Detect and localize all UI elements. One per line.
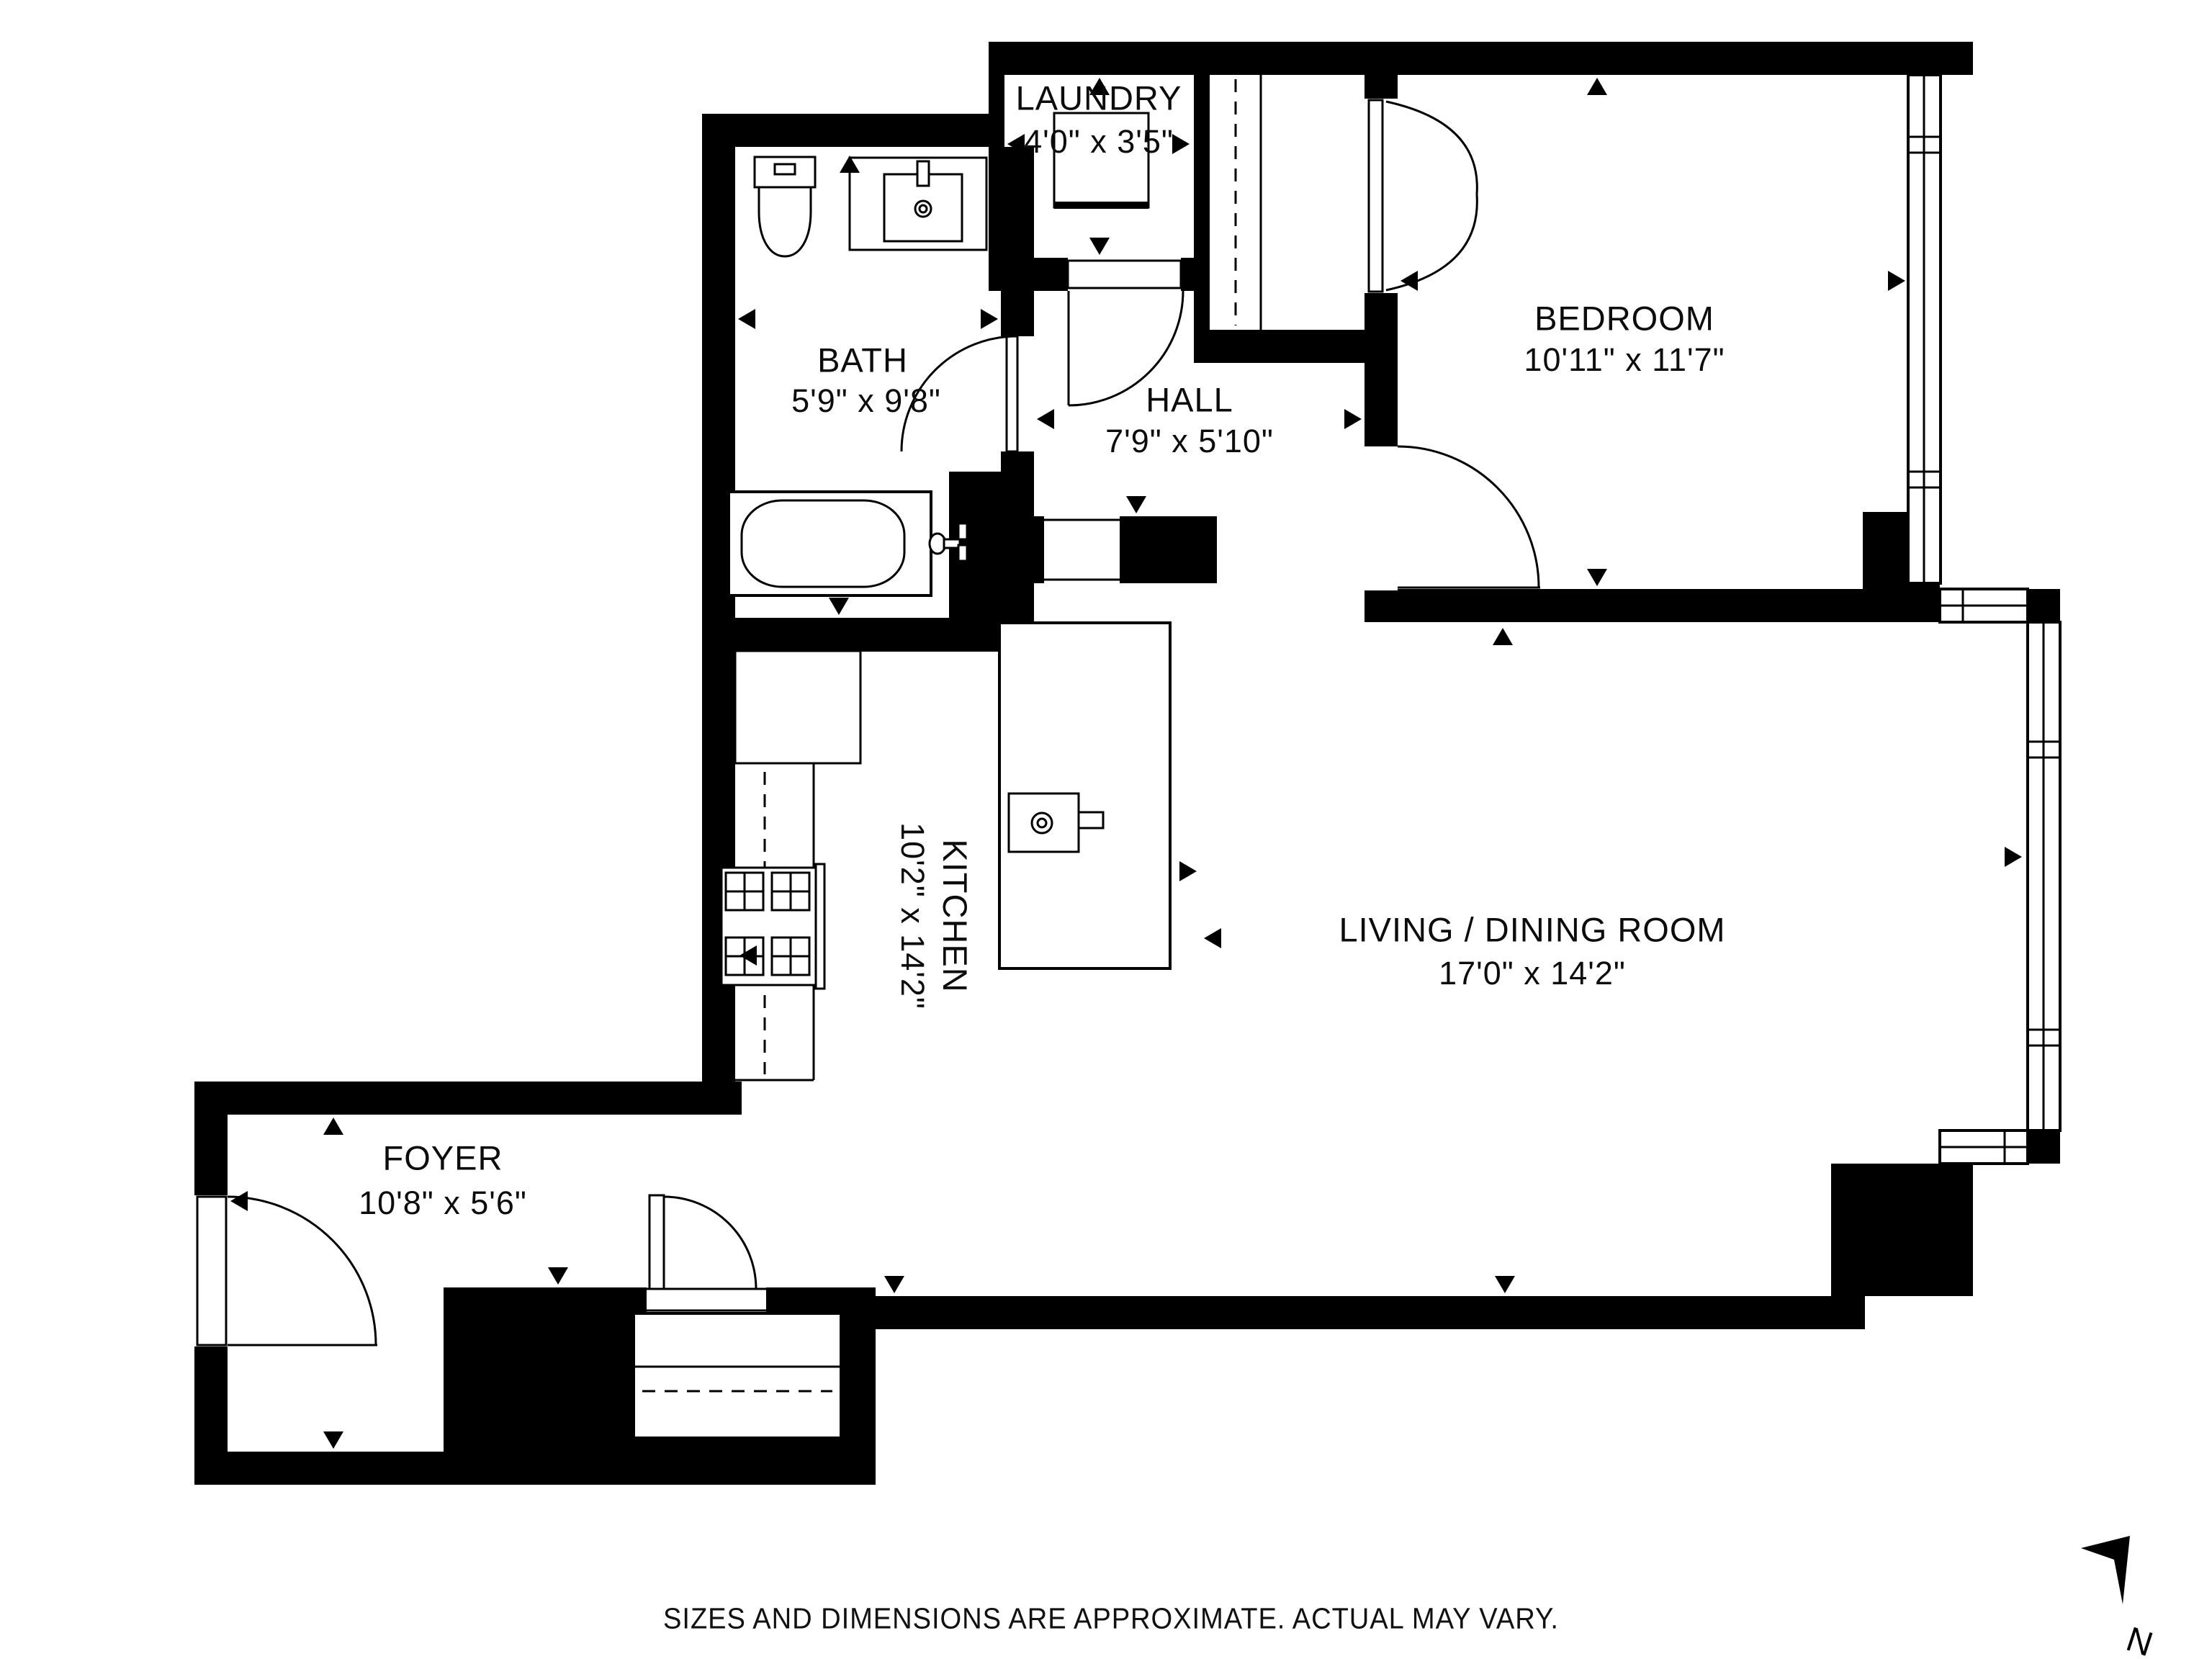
toilet-icon <box>755 157 815 256</box>
room-label-laundry: LAUNDRY <box>1016 78 1182 118</box>
bathtub-icon <box>729 492 967 595</box>
floorplan-drawing: N <box>0 0 2212 1659</box>
room-label-bedroom: BEDROOM <box>1534 299 1714 338</box>
room-label-hall: HALL <box>1146 380 1233 420</box>
room-dims-laundry: 4'0" x 3'5" <box>1024 123 1174 161</box>
bedroom-entry-door <box>1364 446 1540 590</box>
room-dims-bedroom: 10'11" x 11'7" <box>1524 341 1725 379</box>
foyer-entry-door <box>194 1195 377 1346</box>
hall-kitchen-opening <box>1044 516 1120 583</box>
north-label: N <box>2122 1620 2157 1659</box>
bathroom-sink-icon <box>850 158 986 250</box>
north-arrow-icon: N <box>2081 1536 2157 1659</box>
room-label-bath: BATH <box>817 341 908 380</box>
kitchen-island <box>999 623 1170 968</box>
foyer-closet <box>634 1313 841 1438</box>
living-corner-window-bottom <box>1940 1130 2028 1164</box>
room-label-foyer: FOYER <box>383 1138 503 1178</box>
room-dims-foyer: 10'8" x 5'6" <box>359 1184 527 1222</box>
disclaimer-text: SIZES AND DIMENSIONS ARE APPROXIMATE. AC… <box>663 1602 1559 1636</box>
room-label-living: LIVING / DINING ROOM <box>1339 910 1725 950</box>
room-label-kitchen-block: KITCHEN 10'2" x 14'2" <box>891 822 976 1010</box>
hall-closet <box>1236 75 1261 330</box>
room-dims-bath: 5'9" x 9'8" <box>791 382 941 420</box>
room-label-kitchen: KITCHEN <box>933 822 976 1010</box>
room-dims-kitchen: 10'2" x 14'2" <box>891 822 933 1010</box>
living-corner-window-top <box>1940 589 2028 622</box>
bedroom-closet-doors <box>1364 99 1477 293</box>
floorplan-page: N LAUNDRY 4'0" x 3'5" BATH 5'9" x 9'8" H… <box>0 0 2212 1659</box>
bedroom-window-band <box>1908 75 1941 583</box>
room-dims-living: 17'0" x 14'2" <box>1439 955 1626 992</box>
kitchen-counter <box>735 651 860 1080</box>
foyer-closet-door <box>647 1195 766 1313</box>
stove-icon <box>721 864 824 989</box>
room-dims-hall: 7'9" x 5'10" <box>1105 423 1274 460</box>
living-window-band <box>2028 622 2060 1130</box>
